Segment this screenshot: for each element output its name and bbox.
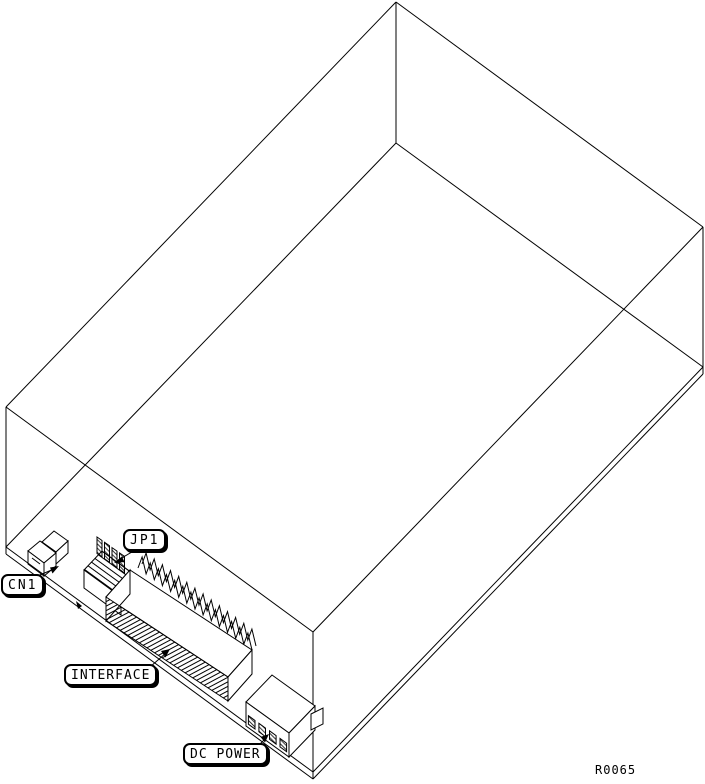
bottom-back-left-edge (6, 143, 396, 547)
jp1-label: JP1 (123, 529, 166, 551)
top-front-right-edge (313, 227, 703, 632)
top-right-edge (396, 2, 703, 227)
bottom-front-right-edge (313, 367, 703, 772)
bottom-back-right-edge (396, 143, 703, 367)
board-front-right-edge (313, 374, 703, 779)
top-left-edge (6, 2, 396, 407)
cn1-connector (28, 531, 68, 576)
disk-drive-connector-diagram: CN1 JP1 INTERFACE DC POWER R0065 (0, 0, 705, 784)
cn1-label: CN1 (1, 574, 44, 596)
interface-label: INTERFACE (64, 664, 157, 686)
reference-number: R0065 (595, 763, 636, 777)
dc-power-label: DC POWER (183, 743, 268, 765)
drive-outline (6, 2, 703, 779)
board-front-left-edge (6, 554, 313, 779)
